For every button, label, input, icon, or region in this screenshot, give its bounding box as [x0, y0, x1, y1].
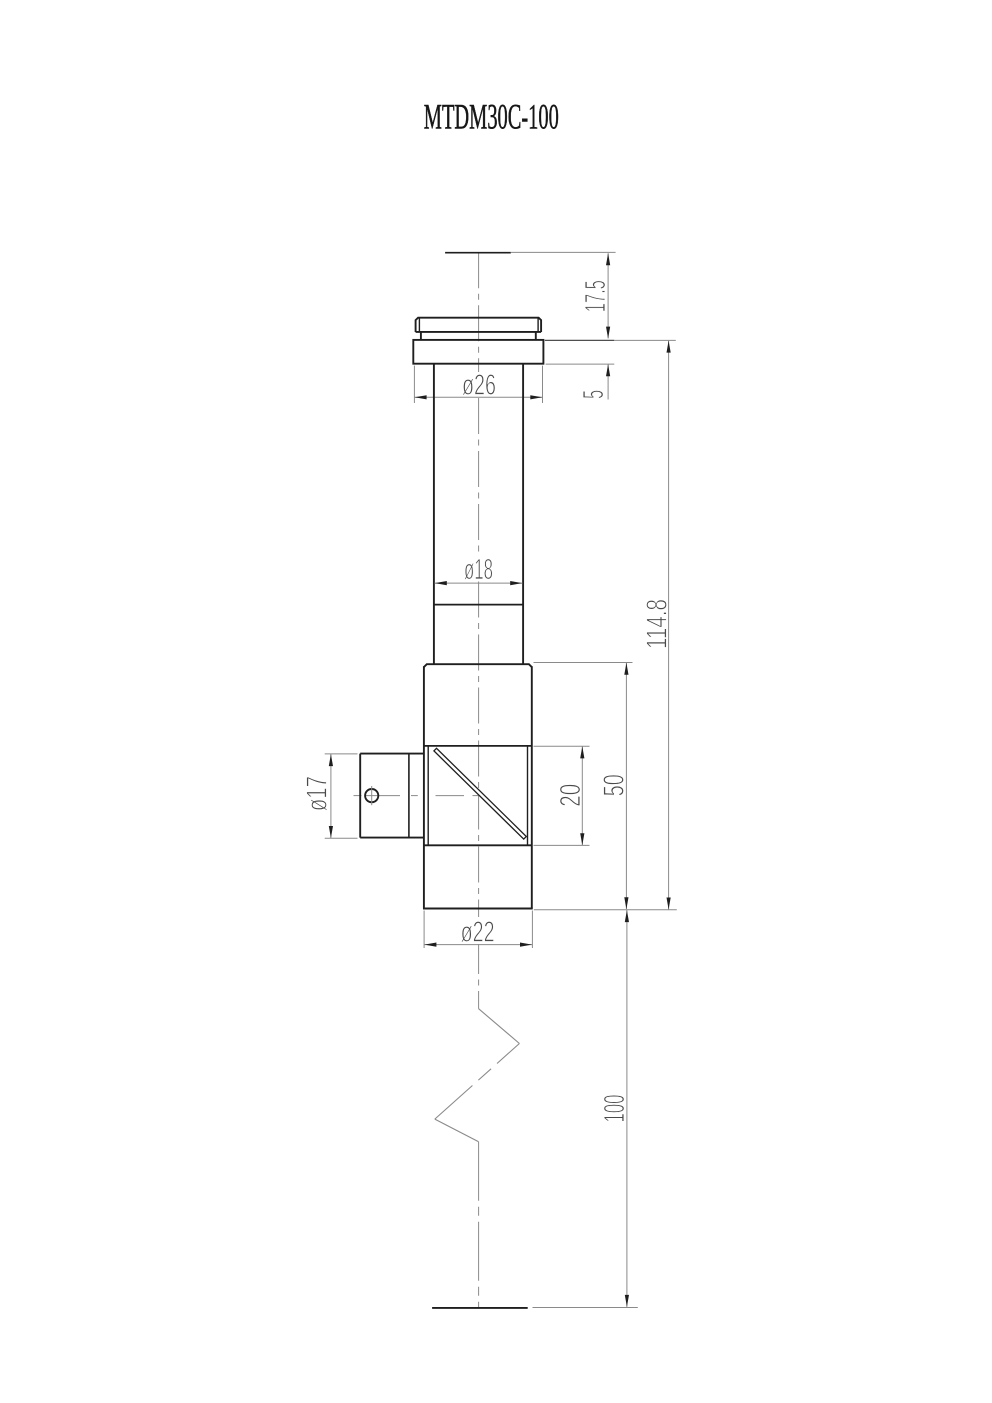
svg-text:100: 100	[599, 1095, 631, 1123]
svg-text:114.8: 114.8	[641, 599, 673, 649]
svg-text:ø22: ø22	[461, 917, 495, 949]
svg-text:ø18: ø18	[464, 554, 493, 586]
svg-text:5: 5	[578, 390, 610, 399]
svg-text:50: 50	[598, 774, 630, 796]
svg-text:ø26: ø26	[462, 370, 496, 402]
svg-text:MTDM30C-100: MTDM30C-100	[424, 97, 559, 137]
svg-text:20: 20	[555, 784, 587, 807]
svg-text:ø17: ø17	[301, 776, 333, 811]
svg-text:17.5: 17.5	[580, 280, 612, 312]
